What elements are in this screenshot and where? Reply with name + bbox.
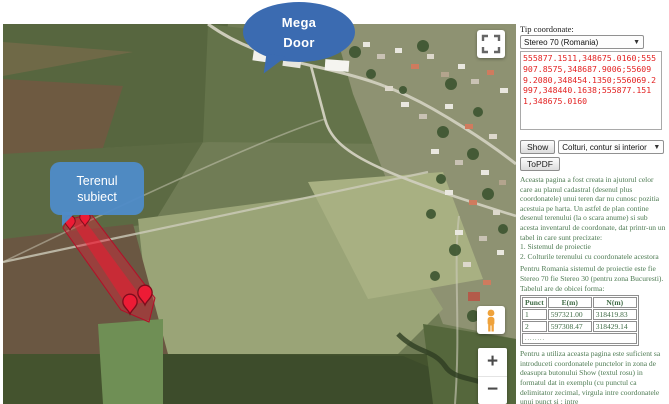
- terenul-subiect-callout: Terenul subiect: [50, 162, 144, 215]
- coordinates-table: Punct E(m) N(m) 1 597321.00 318419.83 2 …: [520, 295, 639, 346]
- zoom-in-button[interactable]: +: [478, 348, 507, 376]
- chevron-down-icon: ▼: [653, 144, 660, 151]
- display-mode-select[interactable]: Colturi, contur si interior ▼: [558, 140, 664, 154]
- fullscreen-icon: [477, 30, 505, 58]
- intro-text: Aceasta pagina a fost creata in ajutorul…: [520, 175, 666, 242]
- page: Mega Door Terenul subiect + − Tip coordo…: [0, 0, 669, 404]
- cell-e: 597321.00: [548, 309, 592, 320]
- fullscreen-button[interactable]: [477, 30, 505, 58]
- terenul-line1: Terenul: [77, 174, 118, 188]
- mega-door-line1: Mega: [282, 15, 316, 30]
- list-item-projection-system: 1. Sistemul de proiectie: [520, 242, 666, 252]
- coord-system-value: Stereo 70 (Romania): [524, 38, 598, 47]
- cell-e: 597308.47: [548, 321, 592, 332]
- pegman-button[interactable]: [477, 306, 505, 334]
- table-row: 2 597308.47 318429.14: [522, 321, 637, 332]
- pegman-icon: [477, 306, 505, 334]
- header-e: E(m): [548, 297, 592, 308]
- zoom-controls: + −: [478, 348, 507, 404]
- table-more-row: ........: [522, 333, 637, 344]
- cell-punct: 1: [522, 309, 547, 320]
- list-item-corners: 2. Colturile terenului cu coordonatele a…: [520, 252, 666, 262]
- mega-door-callout: Mega Door: [243, 2, 355, 62]
- coord-system-select[interactable]: Stereo 70 (Romania) ▼: [520, 35, 644, 49]
- header-n: N(m): [593, 297, 637, 308]
- coord-type-label: Tip coordonate:: [520, 24, 666, 34]
- table-row: 1 597321.00 318419.83: [522, 309, 637, 320]
- zoom-out-button[interactable]: −: [478, 376, 507, 404]
- show-button[interactable]: Show: [520, 140, 555, 154]
- display-mode-value: Colturi, contur si interior: [562, 143, 646, 152]
- table-header-row: Punct E(m) N(m): [522, 297, 637, 308]
- coordinates-panel: Tip coordonate: Stereo 70 (Romania) ▼ 55…: [517, 22, 669, 404]
- terenul-line2: subiect: [77, 190, 117, 204]
- topdf-button[interactable]: ToPDF: [520, 157, 560, 171]
- coordinates-input[interactable]: 555877.1511,348675.0160;555907.8575,3486…: [520, 51, 662, 130]
- table-row: ........: [522, 333, 637, 344]
- cell-n: 318429.14: [593, 321, 637, 332]
- chevron-down-icon: ▼: [633, 39, 640, 46]
- cell-n: 318419.83: [593, 309, 637, 320]
- mega-door-line2: Door: [283, 35, 315, 50]
- header-punct: Punct: [522, 297, 547, 308]
- usage-text: Pentru a utiliza aceasta pagina este suf…: [520, 349, 666, 404]
- projection-text: Pentru Romania sistemul de proiectie est…: [520, 264, 666, 293]
- cell-punct: 2: [522, 321, 547, 332]
